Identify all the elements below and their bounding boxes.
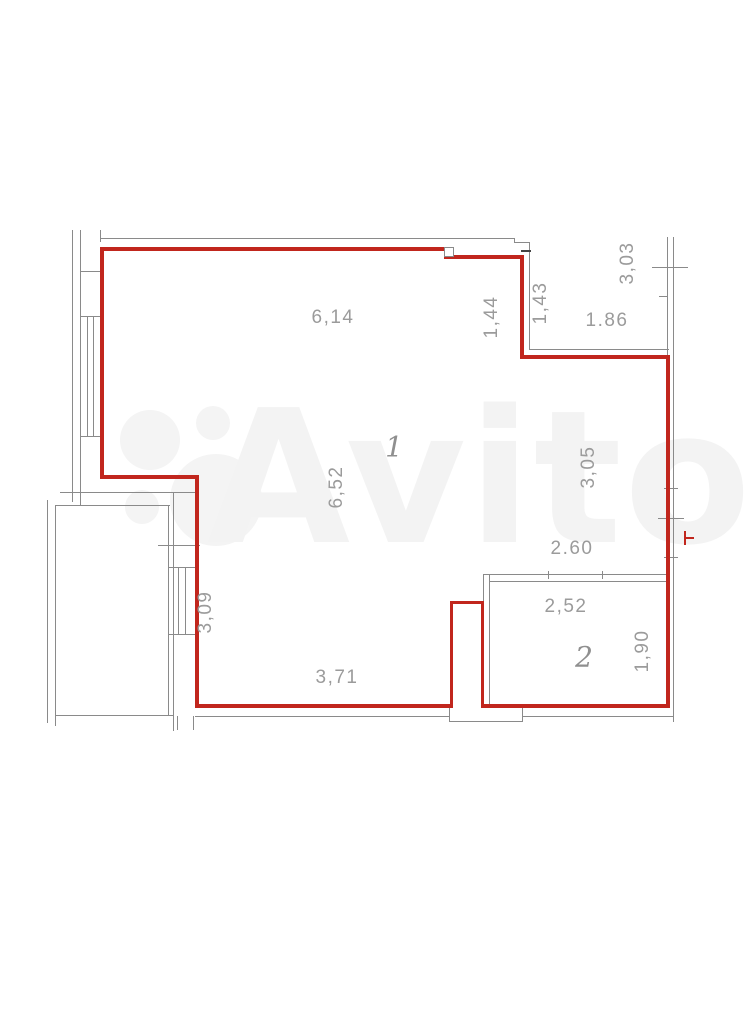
balcony-window-line bbox=[185, 567, 186, 635]
dimension-label: 3,05 bbox=[578, 446, 600, 489]
dimension-label: 3,71 bbox=[316, 667, 359, 689]
room-2-top-line bbox=[483, 574, 668, 575]
left-wall-tick bbox=[158, 545, 200, 546]
room-2-number: 2 bbox=[575, 641, 593, 674]
bottom-stub-line bbox=[177, 716, 178, 730]
bottom-outer-line bbox=[523, 716, 674, 717]
left-wall-connector bbox=[60, 492, 196, 493]
balcony-wall-line bbox=[173, 492, 174, 731]
room-2-left-wall-line bbox=[483, 574, 484, 604]
bottom-stub-line bbox=[193, 716, 194, 730]
balcony-window-cap bbox=[168, 567, 196, 568]
right-wall-tick bbox=[658, 518, 684, 519]
dimension-label: 2,52 bbox=[545, 596, 588, 618]
dimension-label: 1,90 bbox=[632, 630, 654, 673]
left-outer-wall-line bbox=[72, 230, 73, 502]
wall-t-marker bbox=[686, 537, 694, 539]
dimension-label: 6,14 bbox=[312, 307, 355, 329]
left-window-cap bbox=[80, 316, 101, 317]
left-wall-connector bbox=[80, 271, 101, 272]
dimension-label: 2.60 bbox=[551, 538, 594, 560]
left-window-line bbox=[87, 316, 88, 437]
outer-top-wall-line bbox=[100, 238, 515, 239]
room-2-top-inner-line bbox=[489, 581, 668, 582]
balcony-outer-line bbox=[47, 500, 48, 723]
left-window-line bbox=[93, 316, 94, 437]
right-outer-wall-line bbox=[673, 237, 674, 722]
watermark-text: Avito bbox=[207, 370, 744, 586]
bottom-outer-line bbox=[195, 716, 450, 717]
balcony-window-line bbox=[178, 567, 179, 635]
dimension-label: 6,52 bbox=[326, 466, 348, 509]
balcony-outer-line bbox=[55, 505, 56, 726]
niche-outer-bottom-line bbox=[529, 349, 669, 350]
balcony-right-line bbox=[168, 505, 169, 716]
wall-bottom-right bbox=[484, 704, 670, 708]
watermark-logo-circle bbox=[120, 410, 180, 470]
wall-left-upper bbox=[100, 247, 104, 479]
room-2-left-wall-line bbox=[489, 574, 490, 706]
outer-top-wall-start-tick bbox=[100, 230, 101, 242]
floor-plan: Avito bbox=[0, 0, 744, 1024]
wall-right bbox=[666, 355, 670, 708]
wall-top-lower bbox=[444, 255, 524, 259]
wall-bottom-left bbox=[195, 704, 454, 708]
wall-left-jog bbox=[100, 475, 199, 479]
room-2-tick bbox=[548, 571, 549, 579]
watermark-logo-circle bbox=[125, 490, 159, 524]
dimension-label: 3,09 bbox=[195, 591, 217, 634]
right-inner-wall-line bbox=[667, 237, 668, 357]
right-wall-tick bbox=[659, 296, 668, 297]
right-wall-tick bbox=[652, 267, 688, 268]
partition-stub bbox=[450, 601, 484, 708]
top-wall-notch bbox=[444, 247, 454, 257]
balcony-window-cap bbox=[168, 634, 196, 635]
outer-top-step-line bbox=[514, 242, 530, 243]
niche-corner-mark bbox=[521, 250, 531, 252]
balcony-top-line bbox=[55, 505, 170, 506]
room-2-tick bbox=[602, 571, 603, 579]
dimension-label: 1,44 bbox=[481, 296, 503, 339]
wall-niche-left bbox=[520, 255, 524, 359]
dimension-label: 1.86 bbox=[586, 310, 629, 332]
wall-top bbox=[100, 247, 447, 251]
left-window-cap bbox=[80, 436, 101, 437]
balcony-bottom-line bbox=[55, 715, 174, 716]
dimension-label: 1,43 bbox=[530, 282, 552, 325]
wall-niche-bottom bbox=[520, 355, 670, 359]
dimension-label: 3,03 bbox=[617, 242, 639, 285]
room-1-number: 1 bbox=[385, 431, 403, 464]
